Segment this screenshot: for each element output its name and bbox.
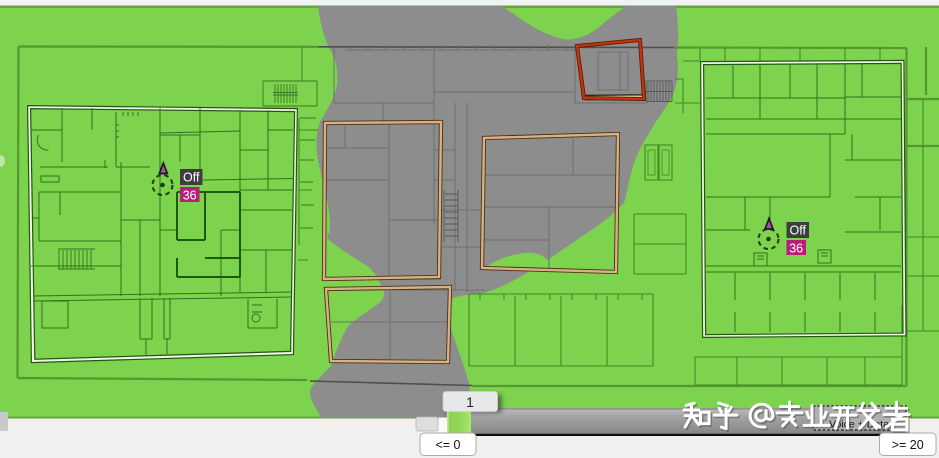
svg-text:1: 1 [466,394,474,410]
svg-text:36: 36 [183,189,197,203]
svg-text:Off: Off [789,224,806,238]
svg-text:>= 20: >= 20 [892,438,924,452]
svg-text:36: 36 [789,242,803,256]
svg-text:Off: Off [183,171,200,185]
svg-text:<= 0: <= 0 [435,438,460,452]
